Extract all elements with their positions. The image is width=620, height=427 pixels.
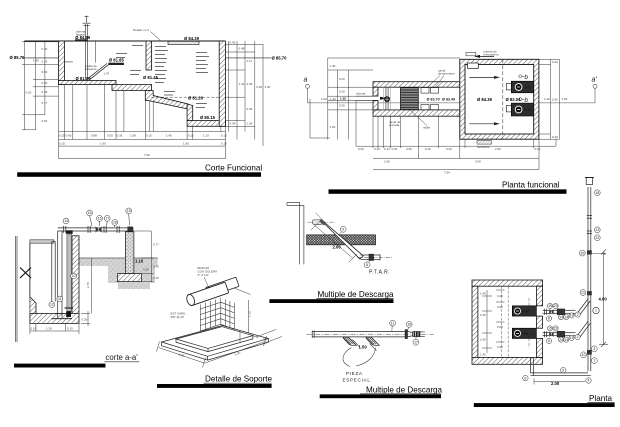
svg-text:llegada: llegada bbox=[76, 33, 86, 37]
svg-text:rebosadero: rebosadero bbox=[483, 53, 499, 57]
svg-text:6: 6 bbox=[548, 339, 550, 343]
svg-text:Ø 82.04: Ø 82.04 bbox=[506, 97, 522, 102]
svg-text:15: 15 bbox=[548, 327, 552, 331]
svg-text:20: 20 bbox=[581, 251, 585, 255]
svg-text:0.15: 0.15 bbox=[221, 134, 227, 138]
svg-text:3/8" @ 20: 3/8" @ 20 bbox=[171, 315, 185, 319]
svg-text:9: 9 bbox=[342, 228, 344, 232]
svg-text:1.90: 1.90 bbox=[384, 159, 390, 163]
svg-text:PIEZA: PIEZA bbox=[346, 371, 363, 376]
svg-text:7.56: 7.56 bbox=[144, 153, 150, 157]
svg-text:19: 19 bbox=[127, 209, 131, 213]
svg-text:0.60: 0.60 bbox=[66, 134, 72, 138]
svg-text:0.30: 0.30 bbox=[358, 147, 364, 151]
svg-text:0.15: 0.15 bbox=[31, 327, 37, 331]
svg-text:0.40: 0.40 bbox=[425, 147, 431, 151]
svg-text:Ø 84.39: Ø 84.39 bbox=[477, 97, 493, 102]
svg-text:10: 10 bbox=[582, 353, 586, 357]
svg-text:11: 11 bbox=[391, 321, 395, 325]
svg-text:6: 6 bbox=[548, 317, 550, 321]
svg-text:0.15: 0.15 bbox=[153, 276, 159, 280]
svg-text:1.60: 1.60 bbox=[100, 142, 106, 146]
svg-text:0.10: 0.10 bbox=[374, 147, 380, 151]
svg-text:1.10: 1.10 bbox=[248, 311, 252, 317]
svg-text:Corte Funcional: Corte Funcional bbox=[205, 164, 262, 173]
svg-text:1.26: 1.26 bbox=[247, 122, 253, 126]
svg-text:2.00: 2.00 bbox=[551, 381, 560, 386]
svg-text:1.10: 1.10 bbox=[203, 134, 209, 138]
svg-text:1.07: 1.07 bbox=[104, 72, 110, 76]
svg-text:15: 15 bbox=[548, 304, 552, 308]
svg-text:Ø 81.09: Ø 81.09 bbox=[76, 76, 92, 81]
svg-text:0.60: 0.60 bbox=[153, 265, 159, 269]
svg-text:2.00: 2.00 bbox=[333, 245, 342, 250]
svg-text:tuberia: tuberia bbox=[356, 92, 366, 96]
svg-text:0.20: 0.20 bbox=[339, 90, 345, 94]
svg-text:0.30: 0.30 bbox=[143, 268, 149, 272]
svg-text:2: 2 bbox=[577, 313, 579, 317]
svg-text:14: 14 bbox=[565, 338, 569, 342]
svg-text:rejilla: rejilla bbox=[423, 126, 430, 130]
svg-text:13: 13 bbox=[596, 228, 600, 232]
svg-text:0.77: 0.77 bbox=[42, 101, 48, 105]
svg-text:1.30: 1.30 bbox=[265, 85, 271, 89]
svg-text:entrada: entrada bbox=[389, 123, 400, 127]
svg-text:CHE: CHE bbox=[522, 310, 530, 314]
svg-text:18: 18 bbox=[596, 191, 600, 195]
svg-text:1.30: 1.30 bbox=[330, 125, 336, 129]
svg-text:18: 18 bbox=[113, 221, 117, 225]
svg-text:1.11: 1.11 bbox=[247, 59, 253, 63]
svg-text:0.35: 0.35 bbox=[117, 134, 123, 138]
svg-text:Ø 83.49: Ø 83.49 bbox=[442, 98, 455, 102]
svg-text:b: b bbox=[525, 74, 529, 81]
svg-text:Ø 83.70: Ø 83.70 bbox=[427, 98, 440, 102]
svg-text:ESPECIAL: ESPECIAL bbox=[343, 378, 371, 383]
svg-text:1.45: 1.45 bbox=[480, 353, 486, 357]
svg-text:0.20: 0.20 bbox=[339, 77, 345, 81]
svg-text:23: 23 bbox=[554, 304, 558, 308]
svg-text:0.18: 0.18 bbox=[42, 90, 48, 94]
svg-text:CHE: CHE bbox=[524, 108, 532, 112]
svg-text:vertedero: vertedero bbox=[477, 145, 490, 149]
svg-text:0.10: 0.10 bbox=[535, 147, 541, 151]
svg-text:1.10: 1.10 bbox=[135, 259, 144, 264]
svg-text:0.15: 0.15 bbox=[146, 134, 152, 138]
svg-text:3.35: 3.35 bbox=[247, 82, 253, 86]
svg-text:3: 3 bbox=[593, 347, 595, 351]
svg-text:19: 19 bbox=[570, 336, 574, 340]
svg-text:a: a bbox=[304, 75, 308, 84]
svg-text:22: 22 bbox=[596, 236, 600, 240]
svg-text:1.40: 1.40 bbox=[330, 64, 336, 68]
svg-text:7: 7 bbox=[593, 359, 595, 363]
svg-text:24: 24 bbox=[559, 338, 563, 342]
svg-text:1.00: 1.00 bbox=[321, 97, 327, 101]
svg-text:1.40: 1.40 bbox=[330, 97, 336, 101]
svg-text:P.T.A.R.: P.T.A.R. bbox=[369, 270, 390, 276]
svg-text:1: 1 bbox=[595, 309, 597, 313]
svg-text:1.45: 1.45 bbox=[480, 292, 486, 296]
svg-text:1.60: 1.60 bbox=[562, 97, 568, 101]
svg-text:19: 19 bbox=[570, 314, 574, 318]
svg-text:4.00: 4.00 bbox=[599, 297, 608, 302]
svg-text:0.48: 0.48 bbox=[239, 47, 245, 51]
svg-text:6: 6 bbox=[524, 376, 526, 380]
svg-text:0.20: 0.20 bbox=[392, 147, 398, 151]
svg-text:Ø 81.26: Ø 81.26 bbox=[188, 96, 204, 101]
svg-text:0.15: 0.15 bbox=[59, 142, 65, 146]
svg-text:CHE: CHE bbox=[522, 332, 530, 336]
svg-text:Ø 81.45: Ø 81.45 bbox=[143, 75, 159, 80]
svg-text:1.90: 1.90 bbox=[33, 58, 39, 62]
svg-text:8: 8 bbox=[366, 263, 368, 267]
svg-text:0.69: 0.69 bbox=[247, 107, 253, 111]
svg-text:0.15: 0.15 bbox=[67, 327, 73, 331]
svg-text:23: 23 bbox=[554, 327, 558, 331]
svg-text:0.36: 0.36 bbox=[406, 147, 412, 151]
svg-text:1.20: 1.20 bbox=[46, 327, 52, 331]
svg-text:Planta funcional: Planta funcional bbox=[502, 181, 560, 190]
svg-text:0.55: 0.55 bbox=[107, 134, 113, 138]
svg-text:Multiple de Descarga: Multiple de Descarga bbox=[366, 385, 443, 394]
svg-text:0.60: 0.60 bbox=[497, 325, 503, 329]
svg-text:17: 17 bbox=[414, 341, 418, 345]
svg-text:desarenador: desarenador bbox=[438, 72, 455, 76]
svg-text:0.45: 0.45 bbox=[497, 294, 503, 298]
svg-text:Detalle de Soporte: Detalle de Soporte bbox=[205, 375, 273, 384]
svg-text:7.54: 7.54 bbox=[444, 171, 450, 175]
svg-text:b: b bbox=[525, 97, 529, 104]
svg-text:16: 16 bbox=[98, 217, 102, 221]
svg-text:24: 24 bbox=[559, 315, 563, 319]
svg-text:0.15: 0.15 bbox=[221, 142, 227, 146]
svg-text:Ø 84.39: Ø 84.39 bbox=[184, 36, 200, 41]
svg-text:0.45: 0.45 bbox=[497, 345, 503, 349]
svg-text:0.20: 0.20 bbox=[26, 91, 32, 95]
svg-text:15: 15 bbox=[88, 211, 92, 215]
svg-text:0.63: 0.63 bbox=[42, 119, 48, 123]
svg-text:1.08: 1.08 bbox=[130, 134, 136, 138]
svg-text:CHE: CHE bbox=[524, 86, 532, 90]
svg-text:17: 17 bbox=[105, 217, 109, 221]
svg-text:0.20: 0.20 bbox=[339, 104, 345, 108]
svg-text:2" X 1/2": 2" X 1/2" bbox=[198, 273, 210, 277]
svg-text:14: 14 bbox=[64, 219, 68, 223]
svg-text:21: 21 bbox=[581, 291, 585, 295]
svg-text:1.40: 1.40 bbox=[166, 134, 172, 138]
svg-text:12: 12 bbox=[50, 303, 54, 307]
svg-text:5.00: 5.00 bbox=[256, 85, 262, 89]
svg-text:0.88: 0.88 bbox=[91, 134, 97, 138]
svg-text:a': a' bbox=[592, 75, 598, 84]
svg-text:1.40: 1.40 bbox=[544, 97, 550, 101]
svg-text:0.15: 0.15 bbox=[188, 134, 194, 138]
svg-text:0.20: 0.20 bbox=[552, 135, 558, 139]
svg-text:Detalle no 4: Detalle no 4 bbox=[133, 28, 149, 32]
svg-text:Planta: Planta bbox=[589, 394, 612, 403]
svg-text:0.20: 0.20 bbox=[42, 81, 48, 85]
svg-text:Multiple de Descarga: Multiple de Descarga bbox=[318, 290, 395, 299]
svg-text:0.23: 0.23 bbox=[42, 60, 48, 64]
svg-text:0.40: 0.40 bbox=[42, 47, 48, 51]
svg-text:limpieza: limpieza bbox=[86, 67, 97, 71]
svg-text:2: 2 bbox=[577, 335, 579, 339]
svg-text:0.43: 0.43 bbox=[446, 147, 452, 151]
svg-text:0.63: 0.63 bbox=[42, 70, 48, 74]
svg-text:0.34: 0.34 bbox=[230, 122, 236, 126]
svg-text:2.60: 2.60 bbox=[495, 147, 501, 151]
svg-text:0.60: 0.60 bbox=[497, 305, 503, 309]
svg-text:0.77: 0.77 bbox=[153, 243, 159, 247]
svg-text:11: 11 bbox=[58, 297, 62, 301]
svg-text:Ø 80.15: Ø 80.15 bbox=[200, 115, 216, 120]
svg-text:1.00: 1.00 bbox=[480, 313, 486, 317]
svg-text:14: 14 bbox=[565, 315, 569, 319]
svg-text:2.70: 2.70 bbox=[86, 282, 90, 288]
svg-text:0.14: 0.14 bbox=[384, 147, 390, 151]
svg-text:2.60: 2.60 bbox=[552, 98, 558, 102]
svg-text:0.45: 0.45 bbox=[230, 41, 236, 45]
svg-text:5: 5 bbox=[562, 368, 564, 372]
svg-text:Ø 85.70: Ø 85.70 bbox=[272, 56, 288, 61]
svg-text:1.60: 1.60 bbox=[183, 142, 189, 146]
svg-text:10: 10 bbox=[72, 274, 76, 278]
svg-text:corte a-a': corte a-a' bbox=[106, 353, 139, 362]
svg-text:1.40: 1.40 bbox=[340, 97, 346, 101]
svg-text:16: 16 bbox=[407, 323, 411, 327]
svg-text:0.15: 0.15 bbox=[59, 134, 65, 138]
svg-text:4: 4 bbox=[588, 379, 590, 383]
svg-text:0.20: 0.20 bbox=[552, 60, 558, 64]
svg-text:Ø 81.85: Ø 81.85 bbox=[109, 58, 125, 63]
svg-text:0.20: 0.20 bbox=[82, 318, 88, 322]
svg-text:1.50: 1.50 bbox=[359, 344, 368, 349]
svg-text:3.60: 3.60 bbox=[475, 159, 481, 163]
svg-text:1.42: 1.42 bbox=[239, 82, 245, 86]
svg-text:Ø 85.70: Ø 85.70 bbox=[10, 55, 26, 60]
svg-text:1.00: 1.00 bbox=[480, 338, 486, 342]
